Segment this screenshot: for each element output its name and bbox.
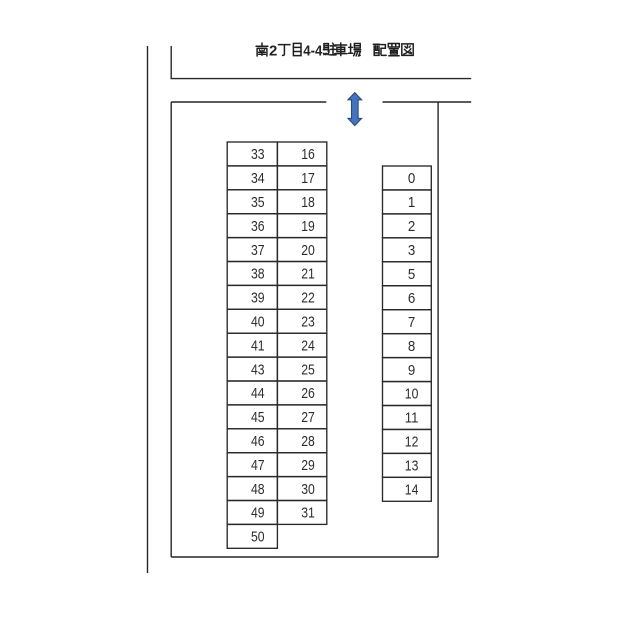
- svg-text:44: 44: [251, 386, 265, 402]
- svg-text:27: 27: [301, 410, 315, 426]
- svg-text:0: 0: [408, 171, 415, 187]
- svg-text:49: 49: [251, 506, 265, 522]
- svg-text:33: 33: [251, 147, 265, 163]
- svg-text:29: 29: [301, 458, 315, 474]
- svg-text:5: 5: [408, 267, 415, 283]
- svg-text:25: 25: [301, 362, 315, 378]
- svg-text:19: 19: [301, 219, 315, 235]
- svg-text:26: 26: [301, 386, 315, 402]
- svg-text:38: 38: [251, 267, 265, 283]
- svg-text:47: 47: [251, 458, 265, 474]
- svg-text:34: 34: [251, 171, 265, 187]
- svg-text:12: 12: [405, 435, 419, 451]
- svg-text:11: 11: [405, 411, 419, 427]
- svg-text:1: 1: [408, 195, 415, 211]
- svg-text:23: 23: [301, 314, 315, 330]
- svg-text:8: 8: [408, 339, 415, 355]
- svg-text:20: 20: [301, 243, 315, 259]
- svg-text:36: 36: [251, 219, 265, 235]
- svg-text:6: 6: [408, 291, 415, 307]
- svg-text:3: 3: [408, 243, 415, 259]
- svg-text:18: 18: [301, 195, 315, 211]
- svg-text:40: 40: [251, 314, 265, 330]
- svg-text:7: 7: [408, 315, 415, 331]
- svg-text:2: 2: [269, 43, 277, 60]
- svg-text:48: 48: [251, 482, 265, 498]
- svg-text:24: 24: [301, 338, 315, 354]
- svg-text:39: 39: [251, 291, 265, 307]
- svg-text:35: 35: [251, 195, 265, 211]
- svg-text:46: 46: [251, 434, 265, 450]
- svg-text:9: 9: [408, 363, 415, 379]
- svg-text:4-4: 4-4: [303, 43, 323, 60]
- svg-text:22: 22: [301, 291, 315, 307]
- svg-text:43: 43: [251, 362, 265, 378]
- svg-text:16: 16: [301, 147, 315, 163]
- svg-text:10: 10: [405, 387, 419, 403]
- svg-text:31: 31: [301, 506, 315, 522]
- svg-text:13: 13: [405, 459, 419, 475]
- svg-text:41: 41: [251, 338, 265, 354]
- svg-text:50: 50: [251, 530, 265, 546]
- svg-text:2: 2: [408, 219, 415, 235]
- svg-text:17: 17: [301, 171, 315, 187]
- svg-text:21: 21: [301, 267, 315, 283]
- svg-text:30: 30: [301, 482, 315, 498]
- svg-text:28: 28: [301, 434, 315, 450]
- svg-text:45: 45: [251, 410, 265, 426]
- svg-text:37: 37: [251, 243, 265, 259]
- svg-text:14: 14: [405, 483, 419, 499]
